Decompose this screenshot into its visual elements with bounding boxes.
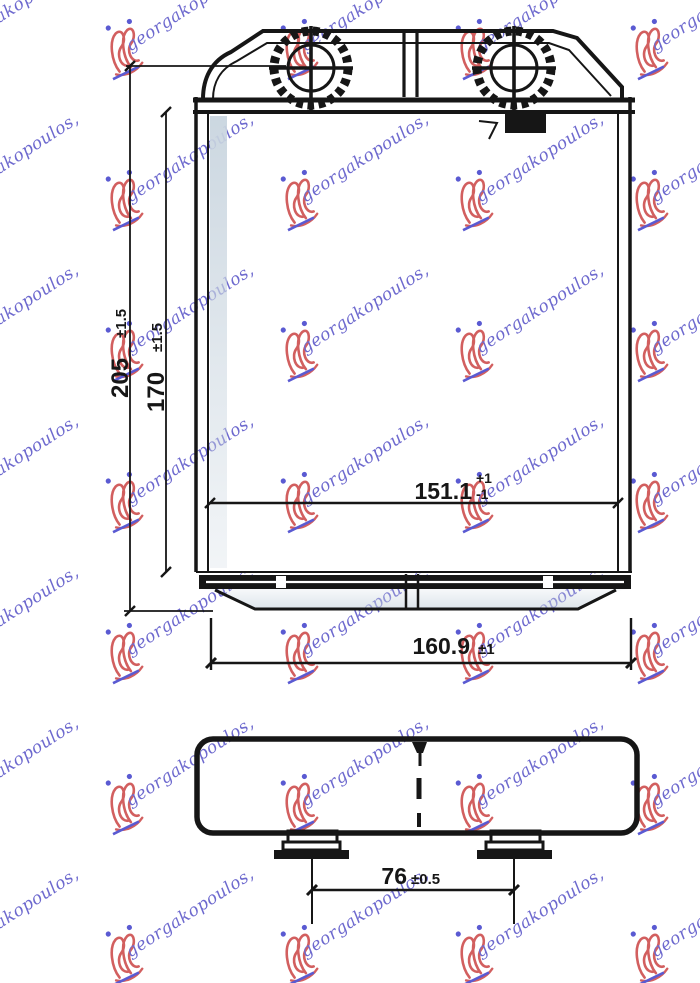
dim-total-width-value: 160.9 (412, 633, 470, 659)
dim-core-width: 151.1 +1 -1 (205, 470, 623, 508)
tank-lower-face (201, 589, 629, 608)
tank-notch-right (543, 576, 553, 588)
dim-foot-spacing: 76 ±0.5 (307, 859, 519, 924)
center-line (412, 742, 427, 827)
dim-core-height-value: 170 (143, 372, 170, 412)
dim-total-width-tol: ±1 (478, 641, 495, 658)
tank-notch-left (276, 576, 286, 588)
bottom-tank (199, 574, 631, 609)
bracket-outer-line (203, 31, 622, 99)
front-view: 205 ±1.5 170 ±1.5 151.1 +1 -1 (107, 26, 636, 670)
dim-core-width-value: 151.1 (414, 478, 472, 504)
top-bracket (203, 31, 622, 99)
technical-drawing-page: georgakopoulos, georgakopoulos, georgako… (0, 0, 700, 983)
dim-core-height: 170 ±1.5 (143, 107, 171, 577)
mount-tab (479, 113, 546, 139)
bottom-view: 76 ±0.5 (197, 739, 637, 924)
dim-foot-spacing-value: 76 (381, 863, 407, 889)
dim-foot-spacing-tol: ±0.5 (411, 871, 440, 888)
header-bar (193, 100, 635, 112)
dim-total-width: 160.9 ±1 (206, 618, 636, 670)
dim-total-height-tol: ±1.5 (113, 309, 130, 338)
heater-core-drawing: 205 ±1.5 170 ±1.5 151.1 +1 -1 (0, 0, 700, 983)
dim-core-height-tol: ±1.5 (149, 323, 166, 352)
dim-core-width-tol-minus: -1 (476, 486, 489, 502)
dim-total-height-value: 205 (107, 358, 134, 398)
grommet-left-icon (269, 26, 353, 110)
dim-core-width-tol-plus: +1 (476, 470, 492, 486)
